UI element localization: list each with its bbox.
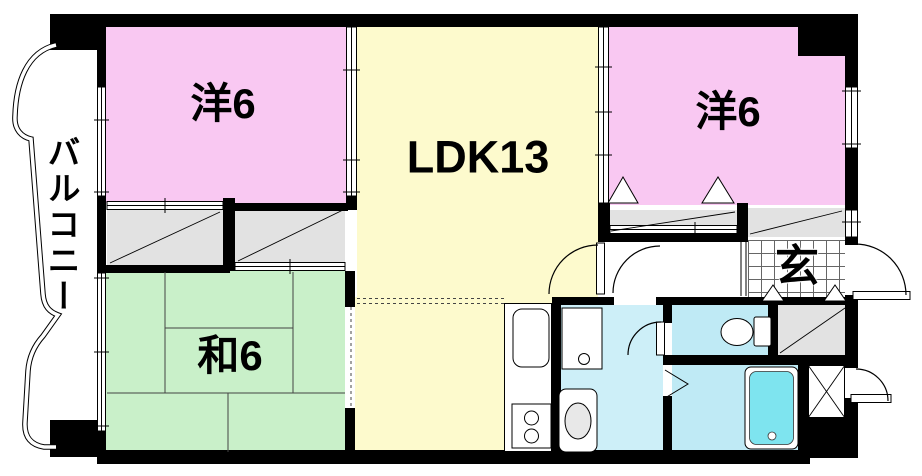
- room-label-bedroom-left: 洋6: [190, 83, 255, 125]
- washing-machine-pan: [562, 308, 602, 369]
- gas-stove: [512, 404, 551, 448]
- room-label-entrance: 玄: [775, 245, 819, 289]
- bathtub: [745, 367, 798, 449]
- floorplan: 洋6 LDK13 洋6 和6 玄 バルコニー: [0, 0, 922, 476]
- bath-folding-door: [664, 368, 689, 398]
- toilet: [721, 317, 771, 346]
- zone-dashes: [351, 299, 504, 408]
- room-label-bedroom-right: 洋6: [695, 91, 760, 133]
- room-label-tatami: 和6: [197, 335, 262, 377]
- entrance-step: [741, 241, 746, 296]
- room-label-balcony: バルコニー: [45, 135, 78, 350]
- room-label-ldk: LDK13: [407, 135, 550, 180]
- closet-diagonals: [110, 210, 845, 418]
- kitchen-sink: [513, 309, 549, 367]
- washbasin: [559, 389, 597, 452]
- plan-linework: [0, 0, 922, 476]
